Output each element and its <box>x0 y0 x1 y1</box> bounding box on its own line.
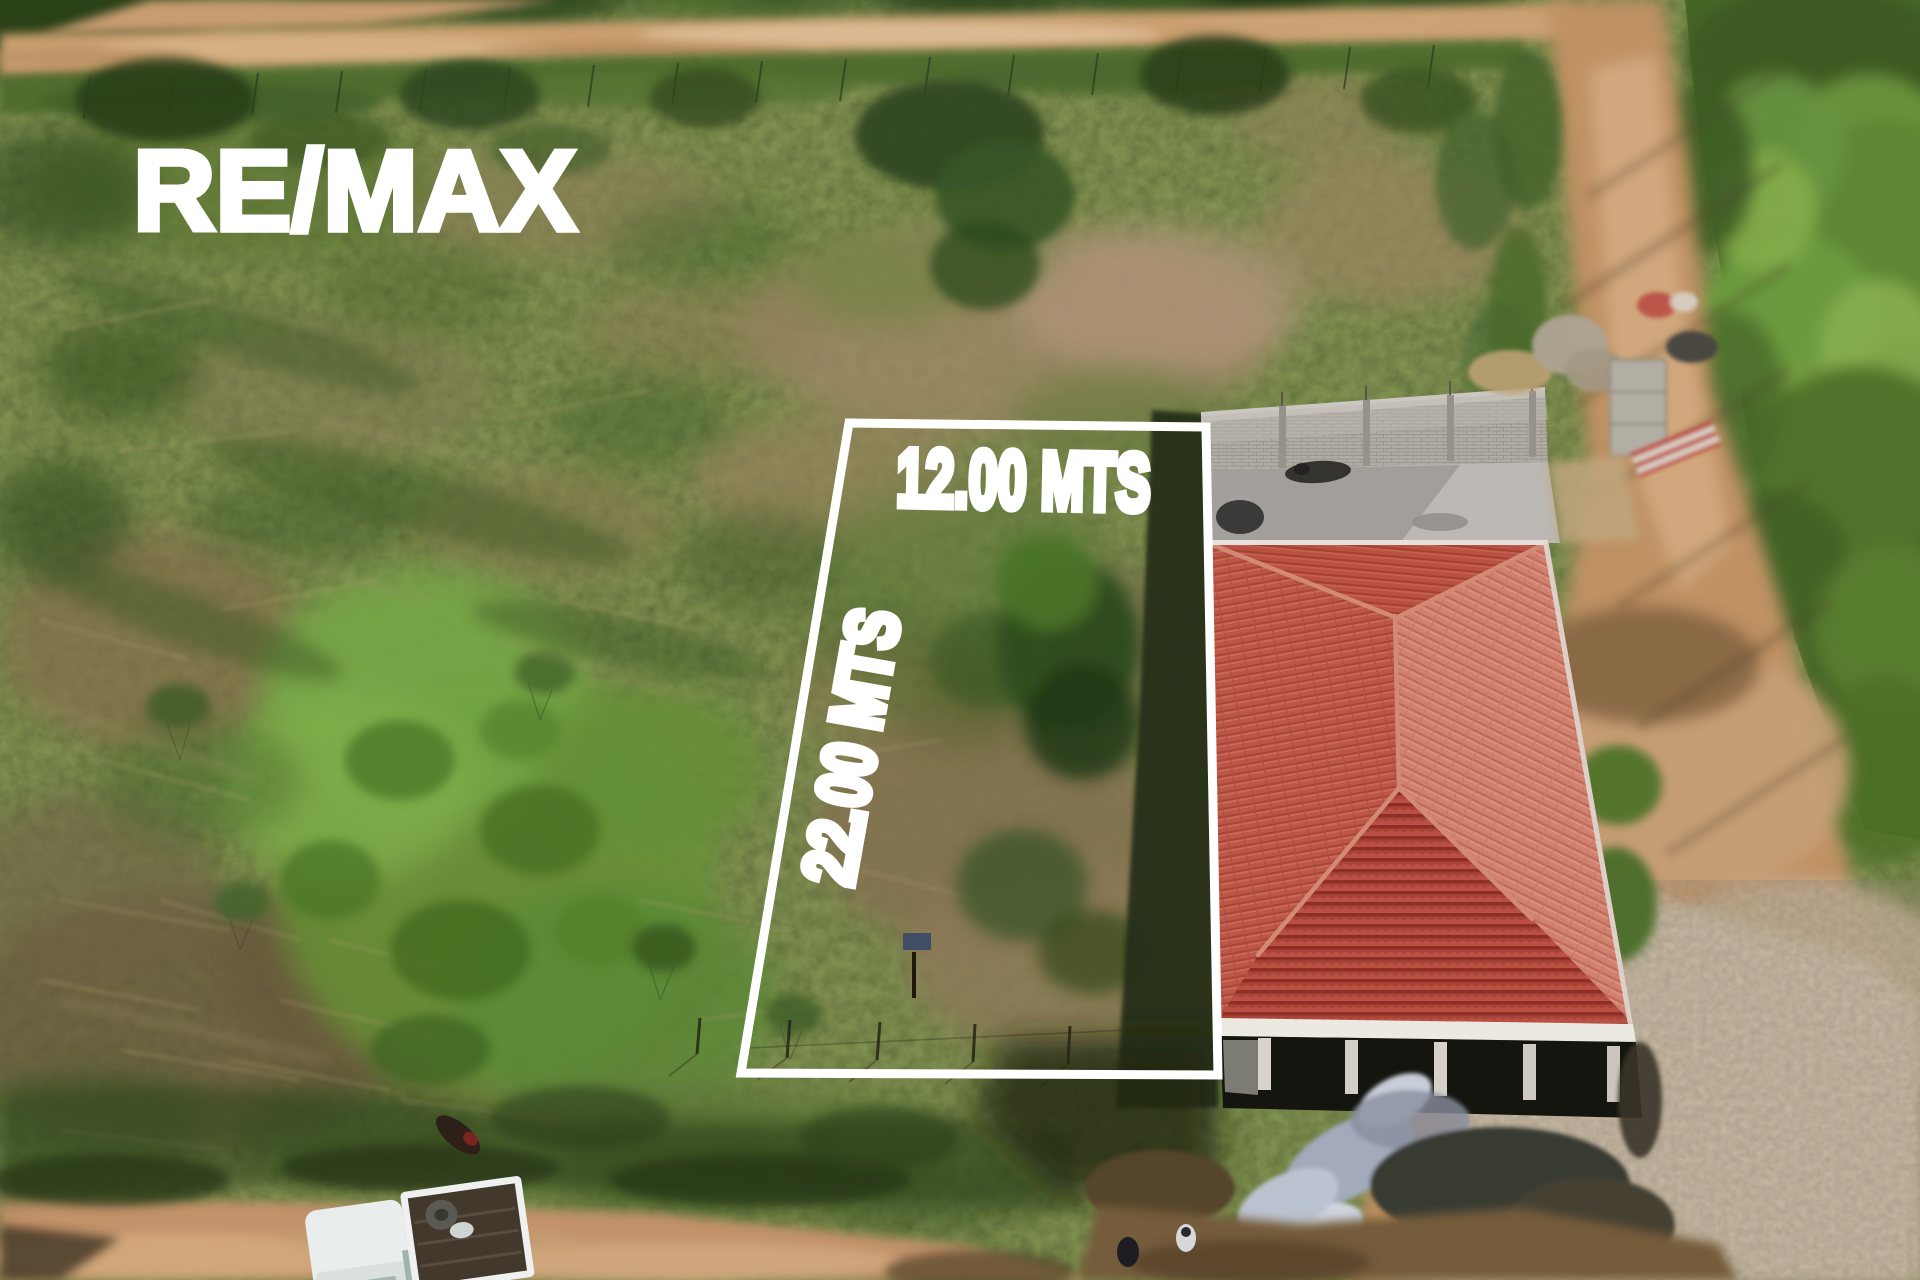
svg-text:RE/MAX: RE/MAX <box>133 128 576 255</box>
svg-text:12.00 MTS: 12.00 MTS <box>896 433 1152 528</box>
